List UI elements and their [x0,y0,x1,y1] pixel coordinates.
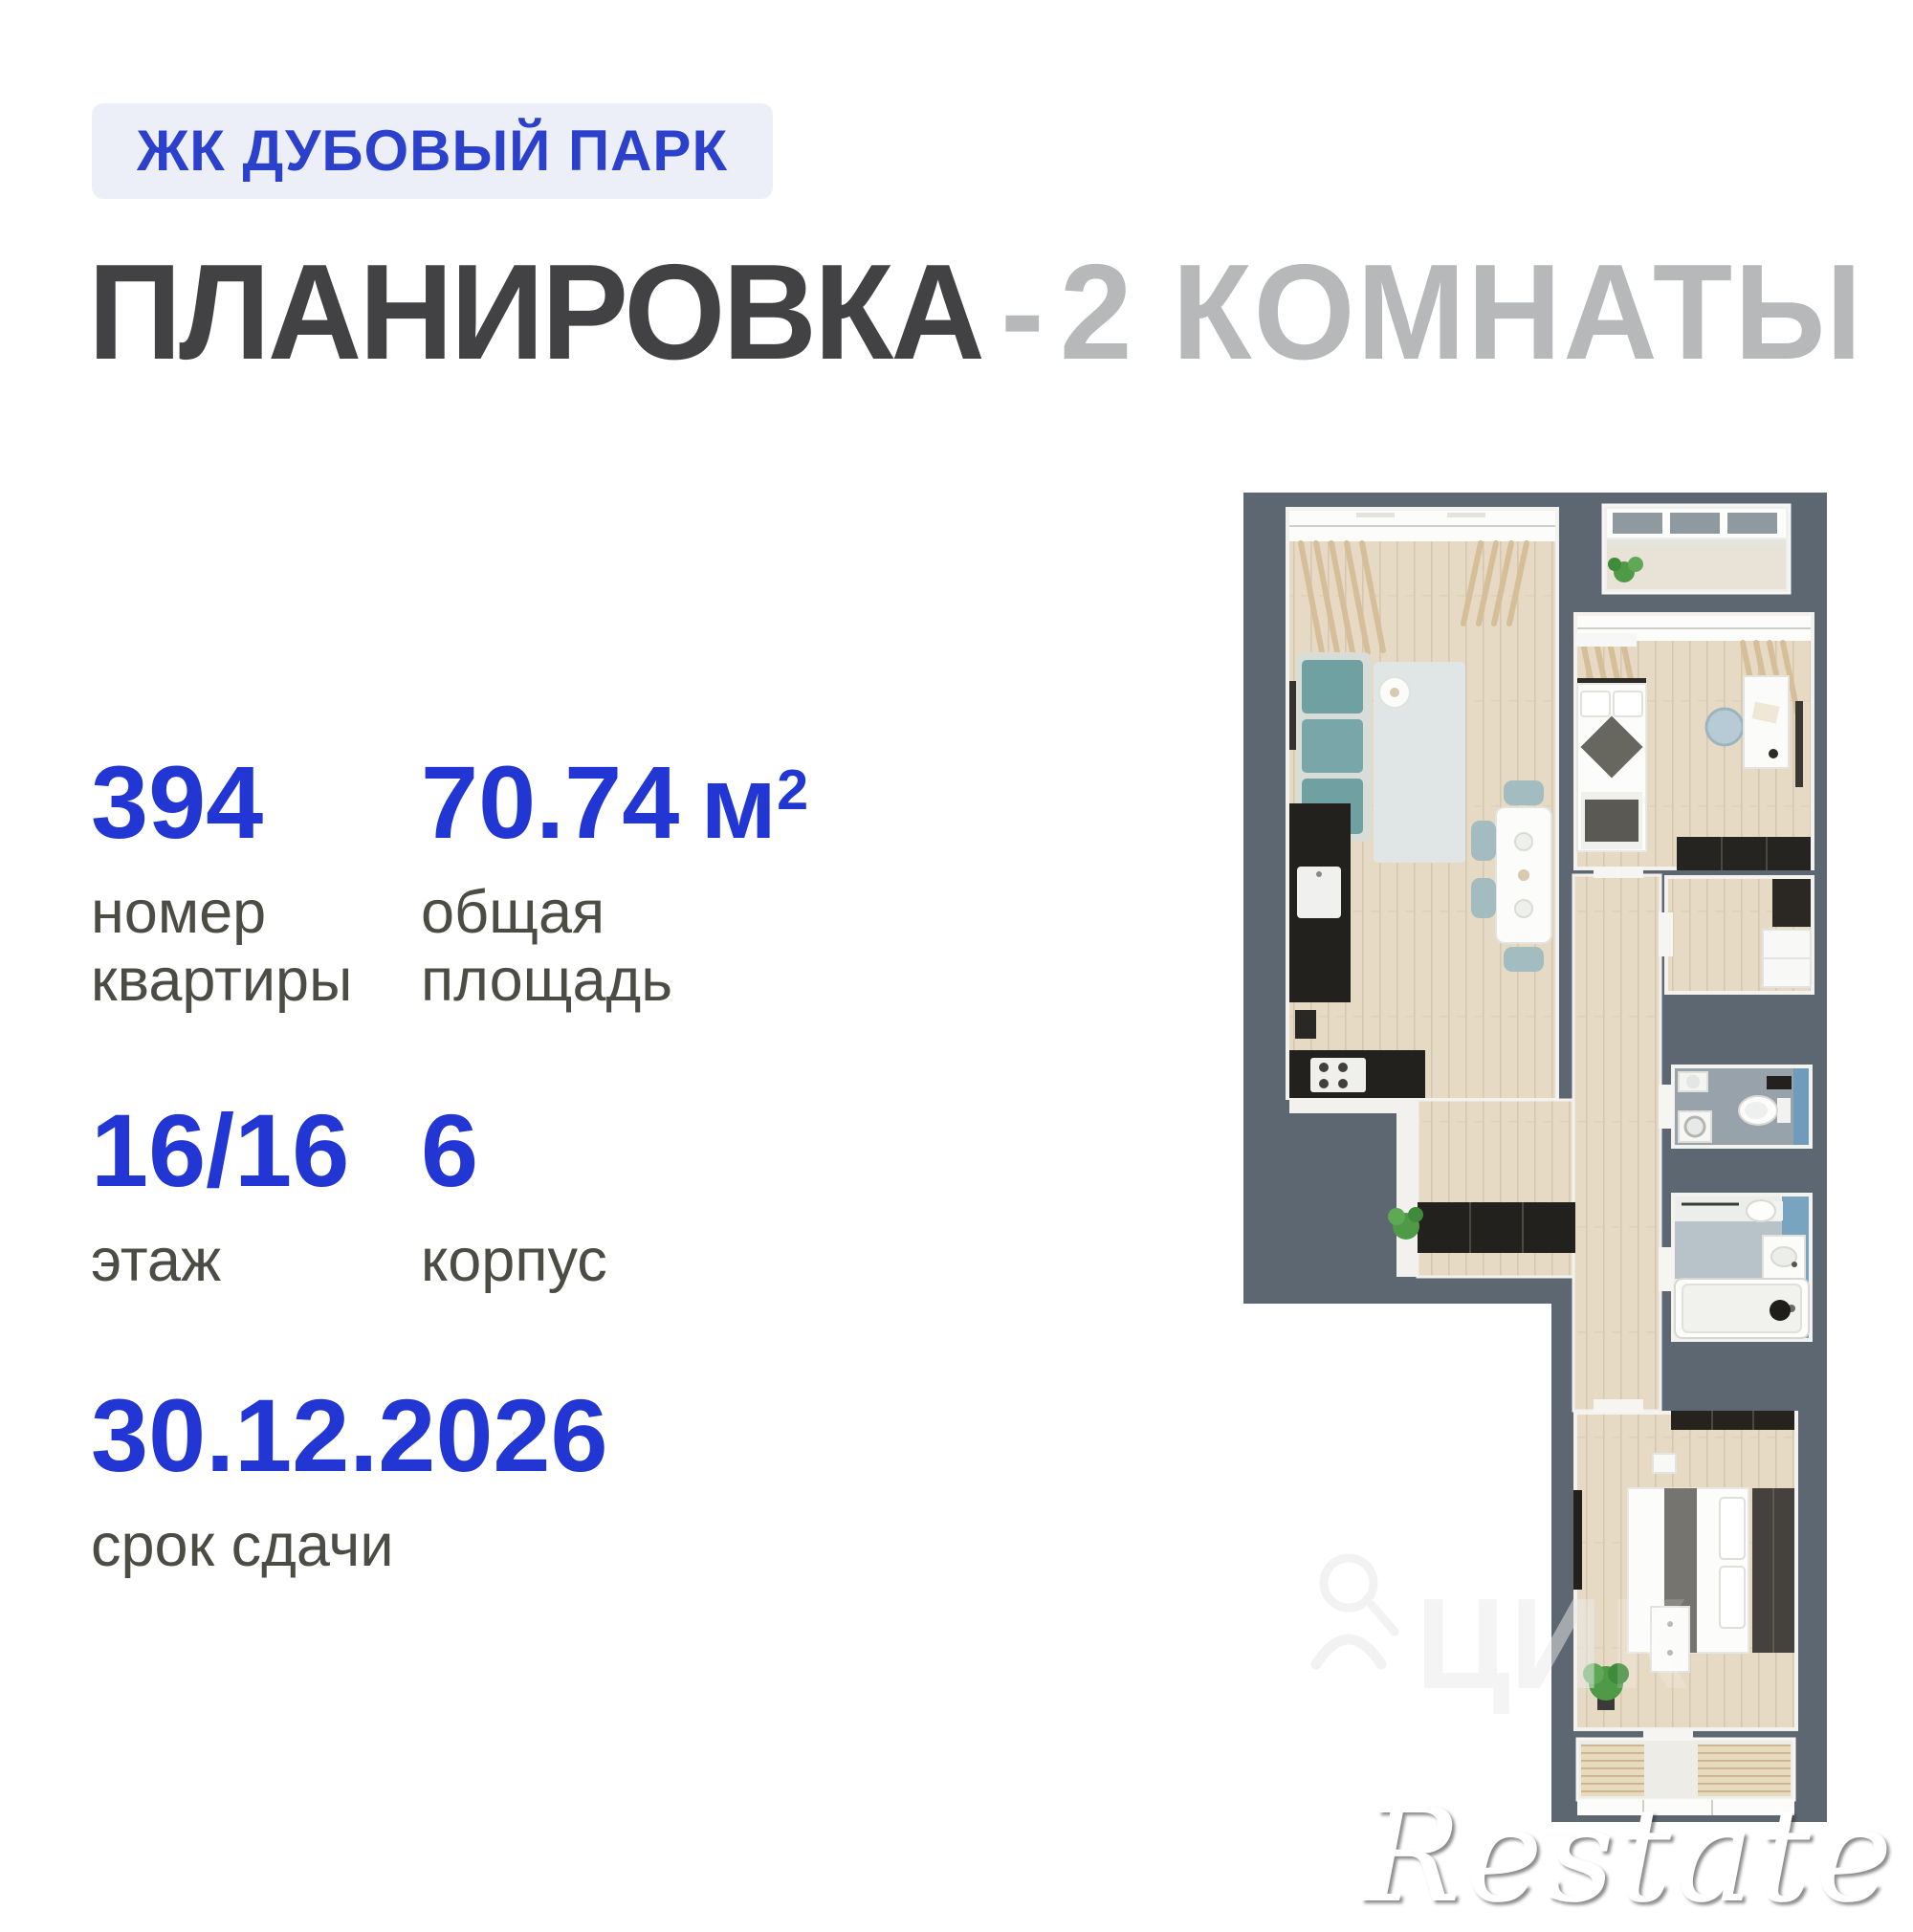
floor-value: 16/16 [91,1099,349,1202]
bedroom-wardrobe [1677,837,1811,870]
listing-card: ЖК ДУБОВЫЙ ПАРК ПЛАНИРОВКА-2 КОМНАТЫ 394… [0,0,1913,1913]
loggia-bottom-window [1577,1800,1794,1815]
page-title: ПЛАНИРОВКА-2 КОМНАТЫ [88,241,1863,384]
completion-date-value: 30.12.2026 [91,1384,608,1487]
completion-date-label: срок сдачи [91,1512,608,1580]
room-living-kitchen [1286,507,1559,1100]
project-badge: ЖК ДУБОВЫЙ ПАРК [92,103,773,199]
apartment-number-label: номер квартиры [91,879,352,1014]
stat-apartment-number: 394 номер квартиры [91,751,352,1014]
stat-total-area: 70.74м2 общая площадь [421,751,808,1014]
floor-label: этаж [91,1227,349,1295]
bed-icon [1577,678,1646,851]
room-bedroom [1573,612,1814,870]
project-badge-label: ЖК ДУБОВЫЙ ПАРК [137,119,728,183]
pouf-icon [1706,709,1743,745]
floor-plan [1242,490,1829,1824]
corridor-floor [1573,875,1660,1411]
bedroom-tv-icon [1795,701,1803,787]
room-storage [1664,875,1814,995]
desk-icon [1744,676,1789,768]
building-label: корпус [421,1227,607,1295]
nightstand-icon [1653,1454,1676,1473]
stat-building: 6 корпус [421,1099,607,1295]
title-dark: ПЛАНИРОВКА [88,236,982,388]
title-separator: - [1000,236,1042,388]
washing-machine-icon [1679,1111,1711,1142]
stat-completion-date: 30.12.2026 срок сдачи [91,1384,608,1580]
apartment-number-value: 394 [91,751,352,854]
total-area-label: общая площадь [421,879,808,1014]
room-loggia-top [1603,505,1790,593]
hall-sideboard [1418,1202,1575,1253]
stat-floor: 16/16 этаж [91,1099,349,1295]
room-wc [1671,1065,1813,1149]
title-light: 2 КОМНАТЫ [1060,236,1864,388]
building-value: 6 [421,1099,607,1202]
tv-icon [1289,681,1296,750]
bathroom-toilet-icon [1747,1200,1783,1221]
room-bedroom-2 [1573,1411,1798,1731]
room-loggia-bottom [1577,1739,1794,1815]
room-bathroom [1671,1193,1813,1342]
dresser-icon [1651,1607,1689,1672]
bath-stool-icon [1770,1300,1791,1321]
total-area-value: 70.74м2 [421,751,808,854]
toilet-icon [1739,1096,1791,1125]
